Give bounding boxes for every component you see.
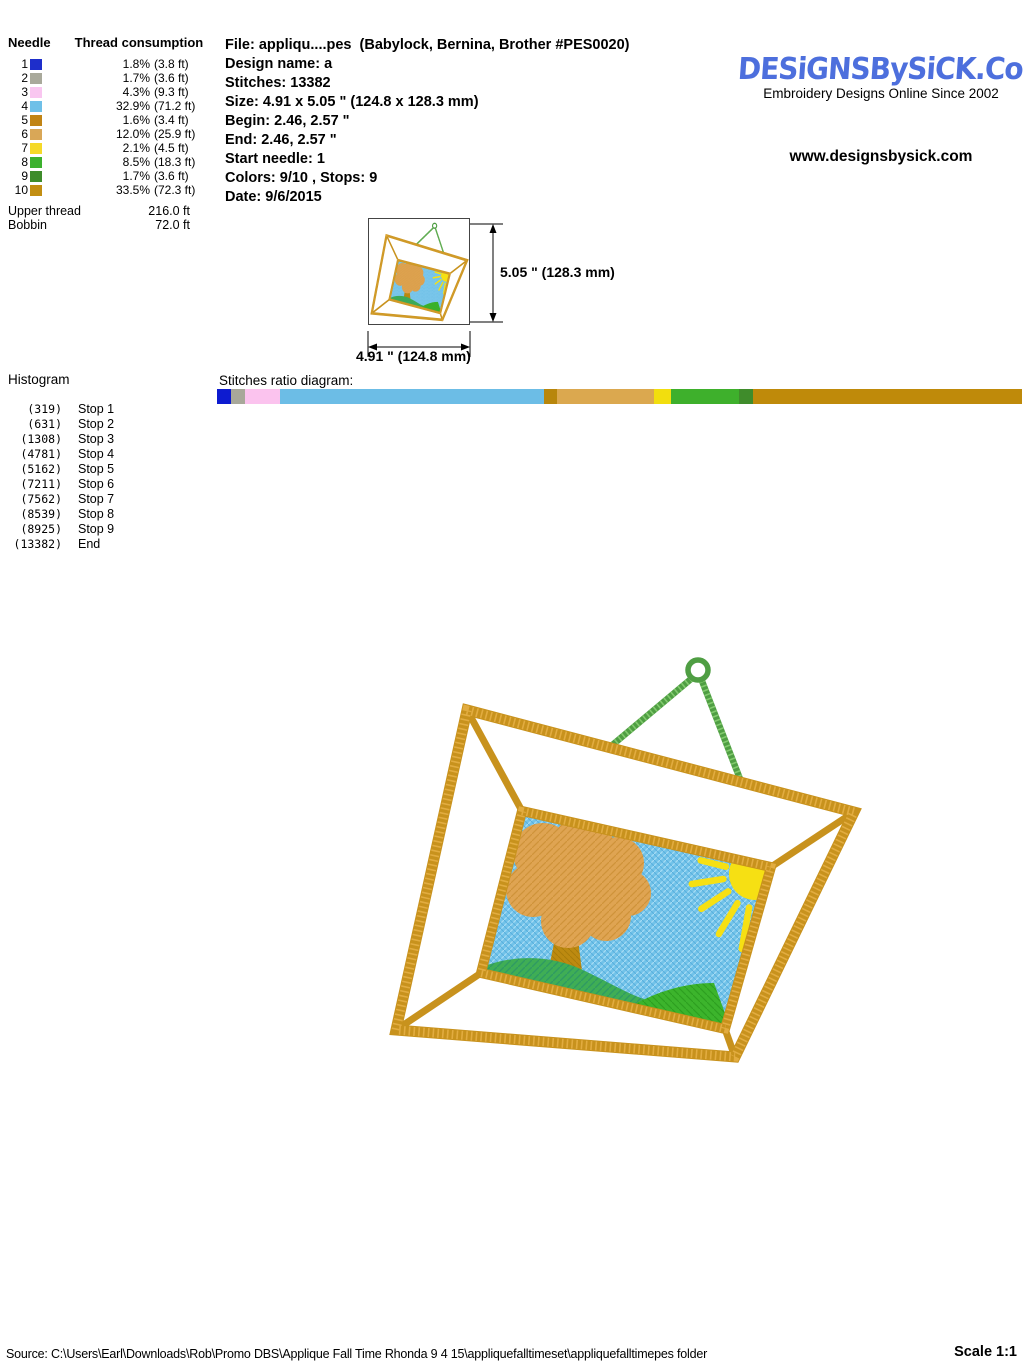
file-info-block: File: appliqu....pes (Babylock, Bernina,…: [225, 36, 630, 207]
thread-percent: 4.3%: [44, 86, 150, 99]
ratio-segment: [280, 389, 545, 404]
needle-row: 432.9%(71.2 ft): [0, 99, 210, 113]
file-info-line: Stitches: 13382: [225, 74, 630, 93]
thread-table-header: NeedleThread consumption: [8, 35, 203, 50]
needle-row: 88.5%(18.3 ft): [0, 155, 210, 169]
histogram-row: (631)Stop 2: [0, 417, 160, 432]
file-info-line: Colors: 9/10 , Stops: 9: [225, 169, 630, 188]
needle-number: 2: [0, 72, 28, 85]
needle-row: 1033.5%(72.3 ft): [0, 183, 210, 197]
ratio-diagram-label: Stitches ratio diagram:: [219, 373, 353, 388]
thread-totals: Upper thread 216.0 ft Bobbin 72.0 ft: [8, 204, 190, 232]
stitch-count: (7211): [0, 477, 62, 492]
file-info-line: File: appliqu....pes (Babylock, Bernina,…: [225, 36, 630, 55]
ratio-segment: [217, 389, 231, 404]
needle-table: 11.8%(3.8 ft)21.7%(3.6 ft)34.3%(9.3 ft)4…: [0, 57, 210, 197]
consumption-column-header: Thread consumption: [75, 35, 204, 50]
brand-block: DESiGNSBySiCK.CoM Embroidery Designs Onl…: [738, 52, 1024, 101]
ratio-segment: [654, 389, 671, 404]
thread-length: (4.5 ft): [154, 142, 210, 155]
needle-row: 34.3%(9.3 ft): [0, 85, 210, 99]
file-info-line: Start needle: 1: [225, 150, 630, 169]
brand-logo: DESiGNSBySiCK.CoM: [737, 51, 1024, 87]
needle-number: 9: [0, 170, 28, 183]
stitch-count: (13382): [0, 537, 62, 552]
thread-percent: 1.8%: [44, 58, 150, 71]
file-info-line: Begin: 2.46, 2.57 ": [225, 112, 630, 131]
thread-length: (9.3 ft): [154, 86, 210, 99]
thread-color-swatch: [30, 115, 42, 126]
stop-label: Stop 8: [78, 507, 160, 522]
stitch-count: (319): [0, 402, 62, 417]
needle-row: 91.7%(3.6 ft): [0, 169, 210, 183]
thread-color-swatch: [30, 143, 42, 154]
thread-color-swatch: [30, 101, 42, 112]
needle-number: 8: [0, 156, 28, 169]
histogram-row: (7211)Stop 6: [0, 477, 160, 492]
width-dimension-label: 4.91 " (124.8 mm): [356, 348, 471, 364]
brand-website: www.designsbysick.com: [738, 148, 1024, 166]
stop-label: Stop 5: [78, 462, 160, 477]
bobbin-value: 72.0 ft: [155, 218, 190, 232]
print-preview-page: NeedleThread consumption 11.8%(3.8 ft)21…: [0, 0, 1024, 1370]
stitch-count: (5162): [0, 462, 62, 477]
histogram-row: (7562)Stop 7: [0, 492, 160, 507]
needle-column-header: Needle: [8, 35, 51, 50]
stitch-count: (8539): [0, 507, 62, 522]
stop-label: Stop 1: [78, 402, 160, 417]
height-dimension-label: 5.05 " (128.3 mm): [500, 264, 615, 280]
stitch-count: (8925): [0, 522, 62, 537]
thread-color-swatch: [30, 171, 42, 182]
thread-percent: 33.5%: [44, 184, 150, 197]
upper-thread-label: Upper thread: [8, 204, 81, 218]
needle-number: 3: [0, 86, 28, 99]
thread-color-swatch: [30, 73, 42, 84]
histogram-row: (8925)Stop 9: [0, 522, 160, 537]
ratio-segment: [231, 389, 245, 404]
histogram-row: (1308)Stop 3: [0, 432, 160, 447]
histogram-row: (319)Stop 1: [0, 402, 160, 417]
thread-length: (3.6 ft): [154, 170, 210, 183]
file-info-line: Size: 4.91 x 5.05 " (124.8 x 128.3 mm): [225, 93, 630, 112]
thread-percent: 1.6%: [44, 114, 150, 127]
stop-label: End: [78, 537, 160, 552]
thread-length: (71.2 ft): [154, 100, 210, 113]
histogram-row: (4781)Stop 4: [0, 447, 160, 462]
needle-number: 10: [0, 184, 28, 197]
needle-number: 7: [0, 142, 28, 155]
thread-length: (3.4 ft): [154, 114, 210, 127]
scale-label: Scale 1:1: [954, 1344, 1017, 1360]
ratio-segment: [671, 389, 739, 404]
needle-row: 72.1%(4.5 ft): [0, 141, 210, 155]
bobbin-row: Bobbin 72.0 ft: [8, 218, 190, 232]
stop-label: Stop 2: [78, 417, 160, 432]
ratio-segment: [245, 389, 280, 404]
thread-length: (3.6 ft): [154, 72, 210, 85]
thread-color-swatch: [30, 129, 42, 140]
stitch-count: (4781): [0, 447, 62, 462]
histogram-row: (8539)Stop 8: [0, 507, 160, 522]
needle-number: 1: [0, 58, 28, 71]
thread-color-swatch: [30, 185, 42, 196]
histogram-row: (13382)End: [0, 537, 160, 552]
embroidery-design-preview: [378, 638, 868, 1078]
thread-length: (72.3 ft): [154, 184, 210, 197]
thread-percent: 1.7%: [44, 72, 150, 85]
needle-number: 6: [0, 128, 28, 141]
thread-percent: 1.7%: [44, 170, 150, 183]
upper-thread-row: Upper thread 216.0 ft: [8, 204, 190, 218]
needle-number: 5: [0, 114, 28, 127]
histogram-list: (319)Stop 1(631)Stop 2(1308)Stop 3(4781)…: [0, 402, 160, 552]
ratio-segment: [739, 389, 753, 404]
ratio-segment: [753, 389, 1022, 404]
thread-color-swatch: [30, 157, 42, 168]
stop-label: Stop 6: [78, 477, 160, 492]
bobbin-label: Bobbin: [8, 218, 47, 232]
source-path: Source: C:\Users\Earl\Downloads\Rob\Prom…: [6, 1347, 707, 1361]
stop-label: Stop 3: [78, 432, 160, 447]
needle-row: 21.7%(3.6 ft): [0, 71, 210, 85]
ratio-segment: [544, 389, 557, 404]
thread-percent: 8.5%: [44, 156, 150, 169]
thread-length: (3.8 ft): [154, 58, 210, 71]
file-info-line: End: 2.46, 2.57 ": [225, 131, 630, 150]
thread-percent: 2.1%: [44, 142, 150, 155]
thread-color-swatch: [30, 59, 42, 70]
stitch-count: (631): [0, 417, 62, 432]
needle-row: 612.0%(25.9 ft): [0, 127, 210, 141]
stitch-count: (7562): [0, 492, 62, 507]
needle-number: 4: [0, 100, 28, 113]
ratio-segment: [557, 389, 654, 404]
thread-length: (25.9 ft): [154, 128, 210, 141]
needle-row: 11.8%(3.8 ft): [0, 57, 210, 71]
needle-row: 51.6%(3.4 ft): [0, 113, 210, 127]
upper-thread-value: 216.0 ft: [148, 204, 190, 218]
thread-length: (18.3 ft): [154, 156, 210, 169]
histogram-row: (5162)Stop 5: [0, 462, 160, 477]
stitch-count: (1308): [0, 432, 62, 447]
stop-label: Stop 9: [78, 522, 160, 537]
stop-label: Stop 4: [78, 447, 160, 462]
stop-label: Stop 7: [78, 492, 160, 507]
brand-tagline: Embroidery Designs Online Since 2002: [738, 86, 1024, 101]
thread-percent: 32.9%: [44, 100, 150, 113]
thread-percent: 12.0%: [44, 128, 150, 141]
thread-color-swatch: [30, 87, 42, 98]
file-info-line: Design name: a: [225, 55, 630, 74]
histogram-title: Histogram: [8, 372, 70, 387]
stitches-ratio-bar: [217, 389, 1022, 404]
